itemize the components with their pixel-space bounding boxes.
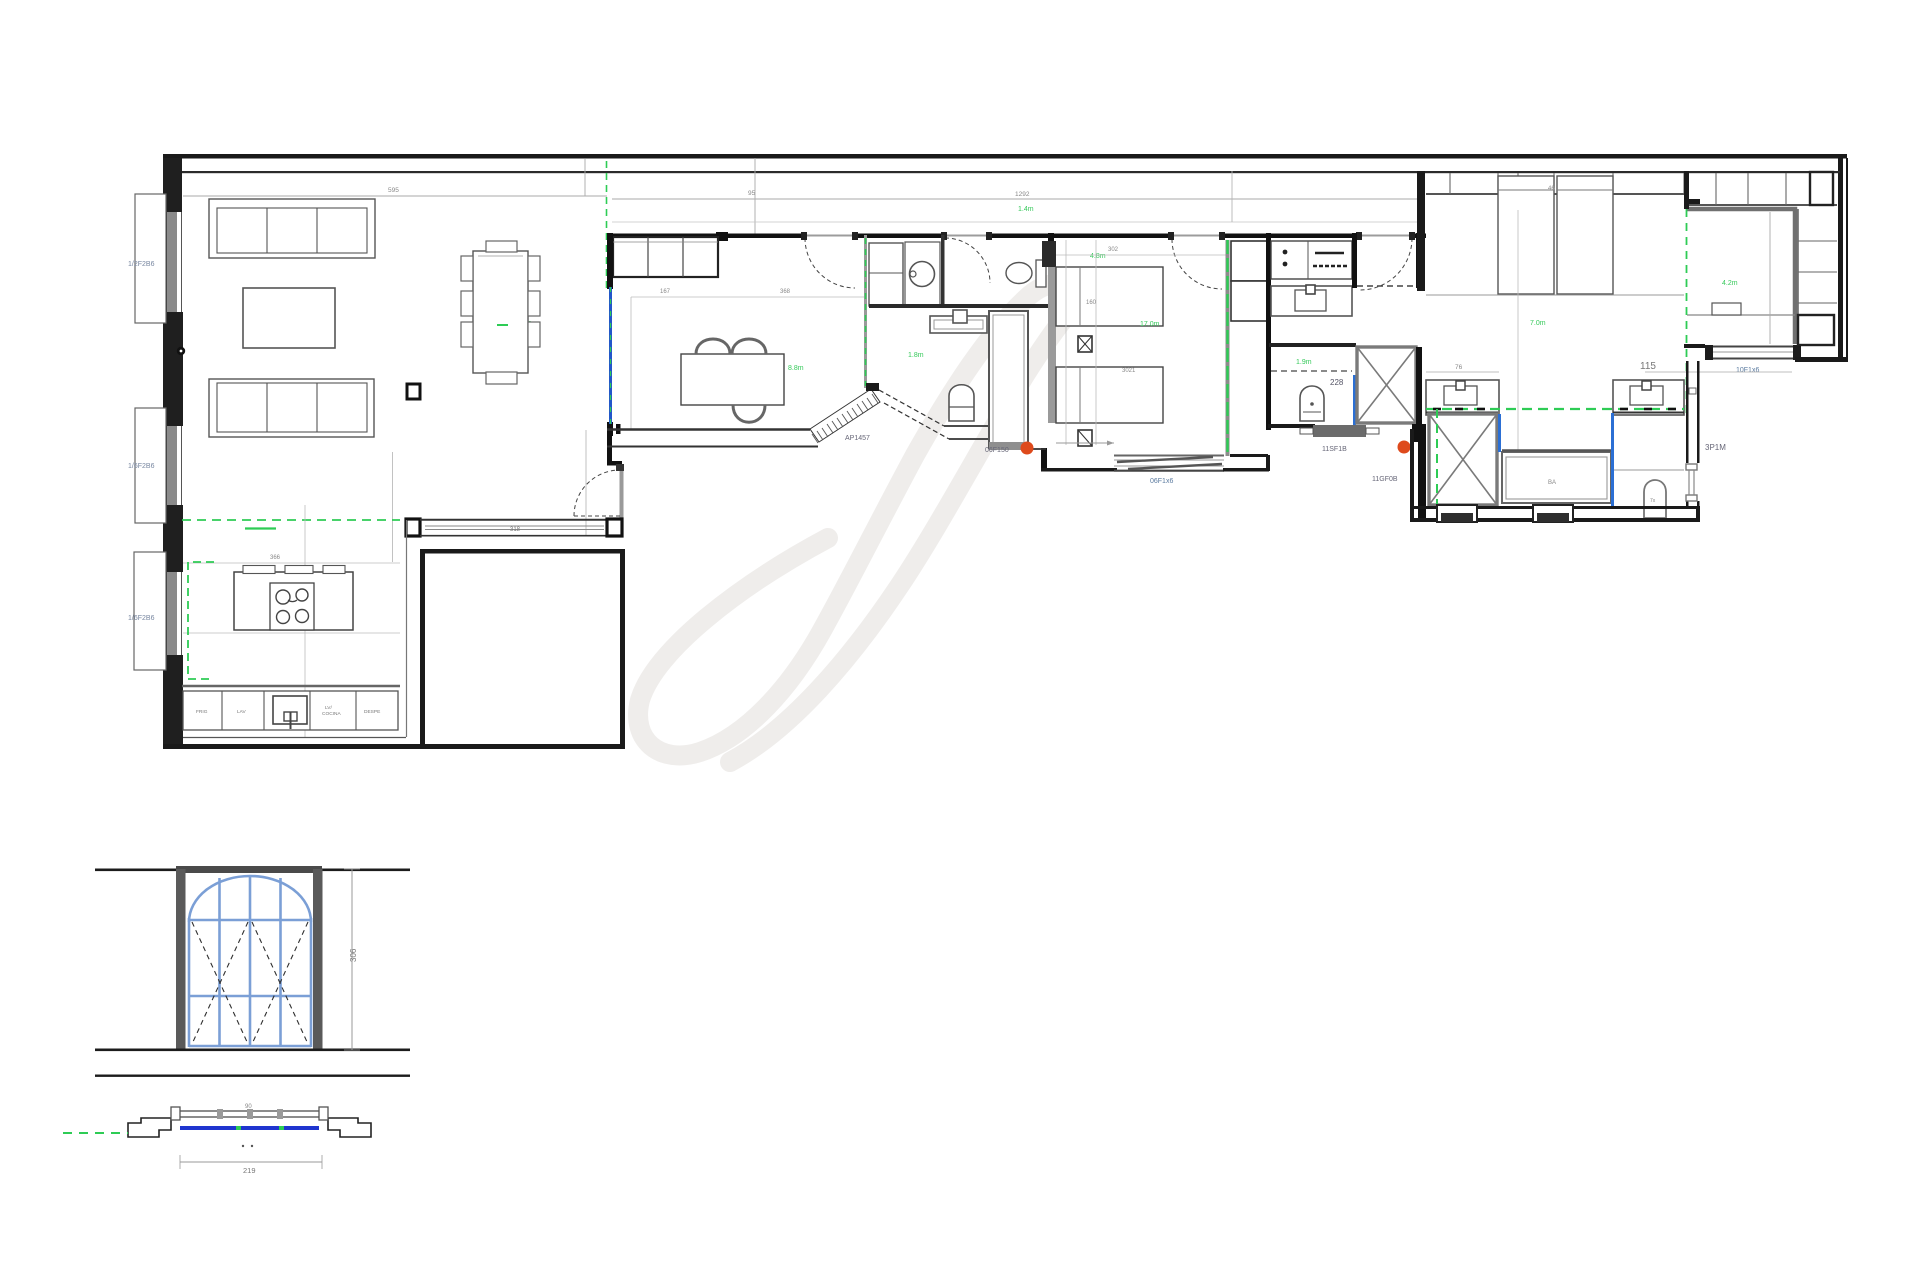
svg-text:1/6F2B6: 1/6F2B6	[128, 463, 155, 470]
svg-text:4.2m: 4.2m	[1722, 280, 1738, 287]
svg-text:90: 90	[245, 1104, 252, 1110]
svg-text:302: 302	[1108, 247, 1119, 253]
svg-text:7x: 7x	[1650, 498, 1656, 504]
svg-text:11GF0B: 11GF0B	[1372, 476, 1398, 483]
svg-text:DESPE: DESPE	[364, 709, 380, 715]
svg-text:228: 228	[1330, 378, 1344, 387]
svg-text:7.0m: 7.0m	[1530, 320, 1546, 327]
svg-text:366: 366	[270, 555, 281, 561]
svg-text:76: 76	[1455, 364, 1463, 371]
svg-text:10F1x6: 10F1x6	[1736, 367, 1759, 374]
svg-text:AP1457: AP1457	[845, 435, 870, 442]
svg-text:COCINA: COCINA	[322, 711, 341, 717]
svg-text:LV/: LV/	[325, 705, 333, 711]
svg-text:06F150: 06F150	[985, 447, 1009, 454]
svg-text:LAV: LAV	[237, 709, 247, 715]
svg-text:115: 115	[1640, 361, 1656, 372]
svg-text:3021: 3021	[1122, 368, 1136, 374]
svg-text:1.8m: 1.8m	[908, 352, 924, 359]
svg-text:160: 160	[1086, 300, 1097, 306]
svg-text:FRIG: FRIG	[196, 709, 208, 715]
svg-text:1292: 1292	[1015, 191, 1030, 198]
svg-text:17.0m: 17.0m	[1140, 321, 1160, 328]
svg-text:8.8m: 8.8m	[788, 365, 804, 372]
svg-text:167: 167	[660, 289, 671, 295]
svg-text:1.4m: 1.4m	[1018, 206, 1034, 213]
svg-text:1/2F2B6: 1/2F2B6	[128, 261, 155, 268]
svg-text:46: 46	[1548, 186, 1555, 192]
svg-text:BA: BA	[1548, 480, 1556, 486]
svg-text:219: 219	[243, 1166, 256, 1175]
svg-text:318: 318	[510, 527, 521, 533]
svg-text:3P1M: 3P1M	[1705, 443, 1726, 452]
svg-text:595: 595	[388, 187, 399, 194]
svg-text:1.9m: 1.9m	[1296, 359, 1312, 366]
svg-text:1/6F2B6: 1/6F2B6	[128, 615, 155, 622]
svg-text:95: 95	[748, 190, 756, 197]
svg-text:306: 306	[349, 948, 358, 962]
svg-text:11SF1B: 11SF1B	[1322, 446, 1347, 453]
svg-text:06F1x6: 06F1x6	[1150, 478, 1173, 485]
svg-text:368: 368	[780, 289, 791, 295]
svg-text:4.8m: 4.8m	[1090, 253, 1106, 260]
